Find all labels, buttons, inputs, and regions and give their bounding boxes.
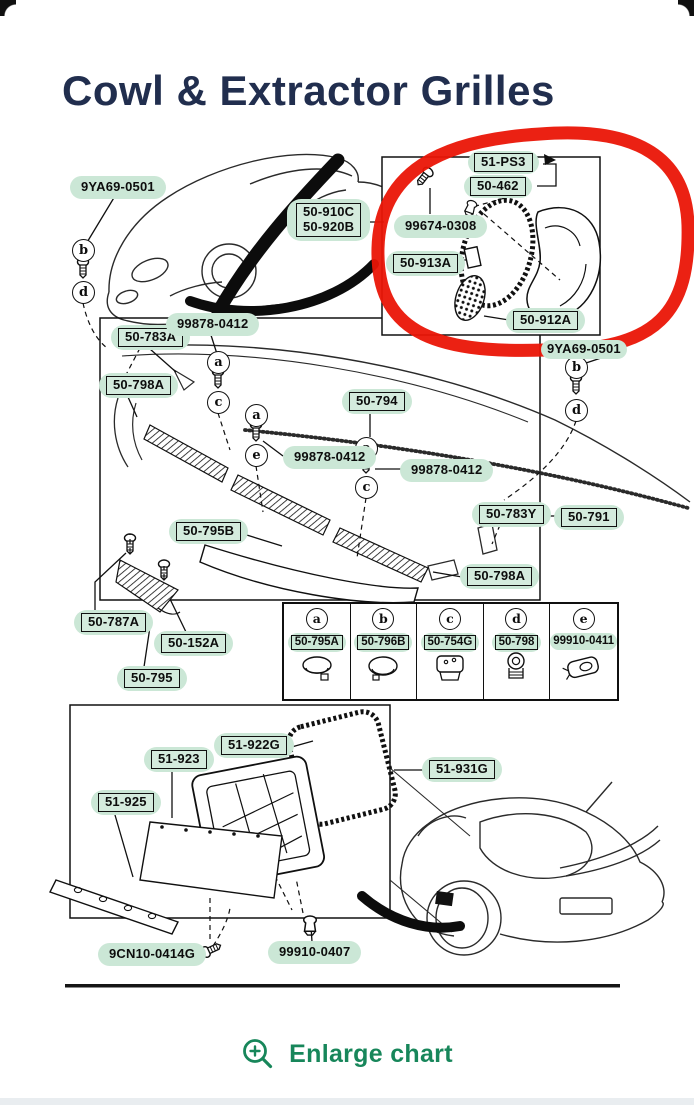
callout-letter: d	[565, 399, 588, 422]
vent-diagram-perspective	[390, 768, 470, 932]
part-label: 9YA69-0501	[541, 340, 627, 359]
part-label: 9CN10-0414G	[98, 943, 206, 966]
grommet-icon	[494, 652, 538, 684]
part-label: 50-787A	[74, 610, 153, 635]
screen-corner	[0, 0, 16, 16]
callout-letter: b	[72, 239, 95, 262]
part-label: 50-798A	[99, 373, 178, 398]
part-label: 50-783Y	[472, 502, 551, 527]
part-label: 99878-0412	[400, 459, 493, 482]
part-label: 99910-0411	[550, 633, 617, 650]
part-label: 99910-0407	[268, 941, 361, 964]
part-label: 50-795B	[169, 519, 248, 544]
retainer-clip-icon	[562, 650, 606, 682]
part-label: 51-PS3	[468, 151, 539, 174]
part-label: 50-462	[464, 175, 532, 198]
enlarge-chart-label: Enlarge chart	[289, 1042, 453, 1067]
fastener-icon	[304, 916, 317, 935]
part-label: 50-795A	[288, 633, 346, 652]
part-label: 50-912A	[506, 308, 585, 333]
vent-strip	[50, 880, 178, 934]
parts-diagram-line-art	[0, 120, 694, 1000]
clip-fastener-icon	[295, 652, 339, 684]
part-label: 50-910C50-920B	[287, 199, 370, 241]
side-grille-assembly	[116, 560, 180, 614]
part-label: 99878-0412	[166, 313, 259, 336]
parts-catalog-page: Cowl & Extractor Grilles	[0, 0, 694, 1105]
clip-fastener-icon	[361, 652, 405, 684]
part-label: 50-913A	[386, 251, 465, 276]
part-label: 50-754G	[421, 633, 480, 652]
callout-letter: a	[245, 404, 268, 427]
callout-letter: e	[245, 444, 268, 467]
callout-letter: c	[355, 476, 378, 499]
part-label: 50-798	[492, 633, 542, 652]
callout-letter: d	[505, 608, 527, 630]
callout-letter: d	[72, 281, 95, 304]
callout-letter: b	[372, 608, 394, 630]
legend-cell: c 50-754G	[416, 604, 483, 699]
screen-corner	[678, 0, 694, 16]
vent-location-marker	[435, 891, 454, 906]
part-label: 51-922G	[214, 733, 294, 758]
callout-letter: a	[207, 351, 230, 374]
part-label: 50-798A	[460, 564, 539, 589]
callout-letter: c	[207, 391, 230, 414]
part-label: 99674-0308	[394, 215, 487, 238]
callout-letter: c	[439, 608, 461, 630]
part-label: 50-796B	[354, 633, 412, 652]
callout-letter: e	[573, 608, 595, 630]
section-divider	[65, 984, 620, 988]
part-label: 51-923	[144, 747, 214, 772]
callout-letter: a	[306, 608, 328, 630]
part-label: 51-931G	[422, 757, 502, 782]
part-label: 51-925	[91, 790, 161, 815]
enlarge-chart-link[interactable]: Enlarge chart	[0, 1031, 694, 1077]
legend-cell: b 50-796B	[350, 604, 417, 699]
square-clip-icon	[428, 652, 472, 684]
part-label: 9YA69-0501	[70, 176, 166, 199]
bottom-bar	[0, 1098, 694, 1105]
part-label: 50-795	[117, 666, 187, 691]
callout-letter: b	[565, 356, 588, 379]
zoom-in-icon	[241, 1037, 275, 1071]
legend-cell: a 50-795A	[284, 604, 350, 699]
part-label: 50-794	[342, 389, 412, 414]
vent-flap	[140, 822, 282, 898]
part-label: 50-791	[554, 505, 624, 530]
part-label: 50-152A	[154, 631, 233, 656]
part-label: 99878-0412	[283, 446, 376, 469]
page-title: Cowl & Extractor Grilles	[62, 68, 555, 114]
fastener-legend-table: a 50-795A b 50-796B c 50-754G	[282, 602, 619, 701]
legend-cell: d 50-798	[483, 604, 550, 699]
legend-cell: e 99910-0411	[549, 604, 617, 699]
pointer-swoosh	[190, 264, 374, 311]
